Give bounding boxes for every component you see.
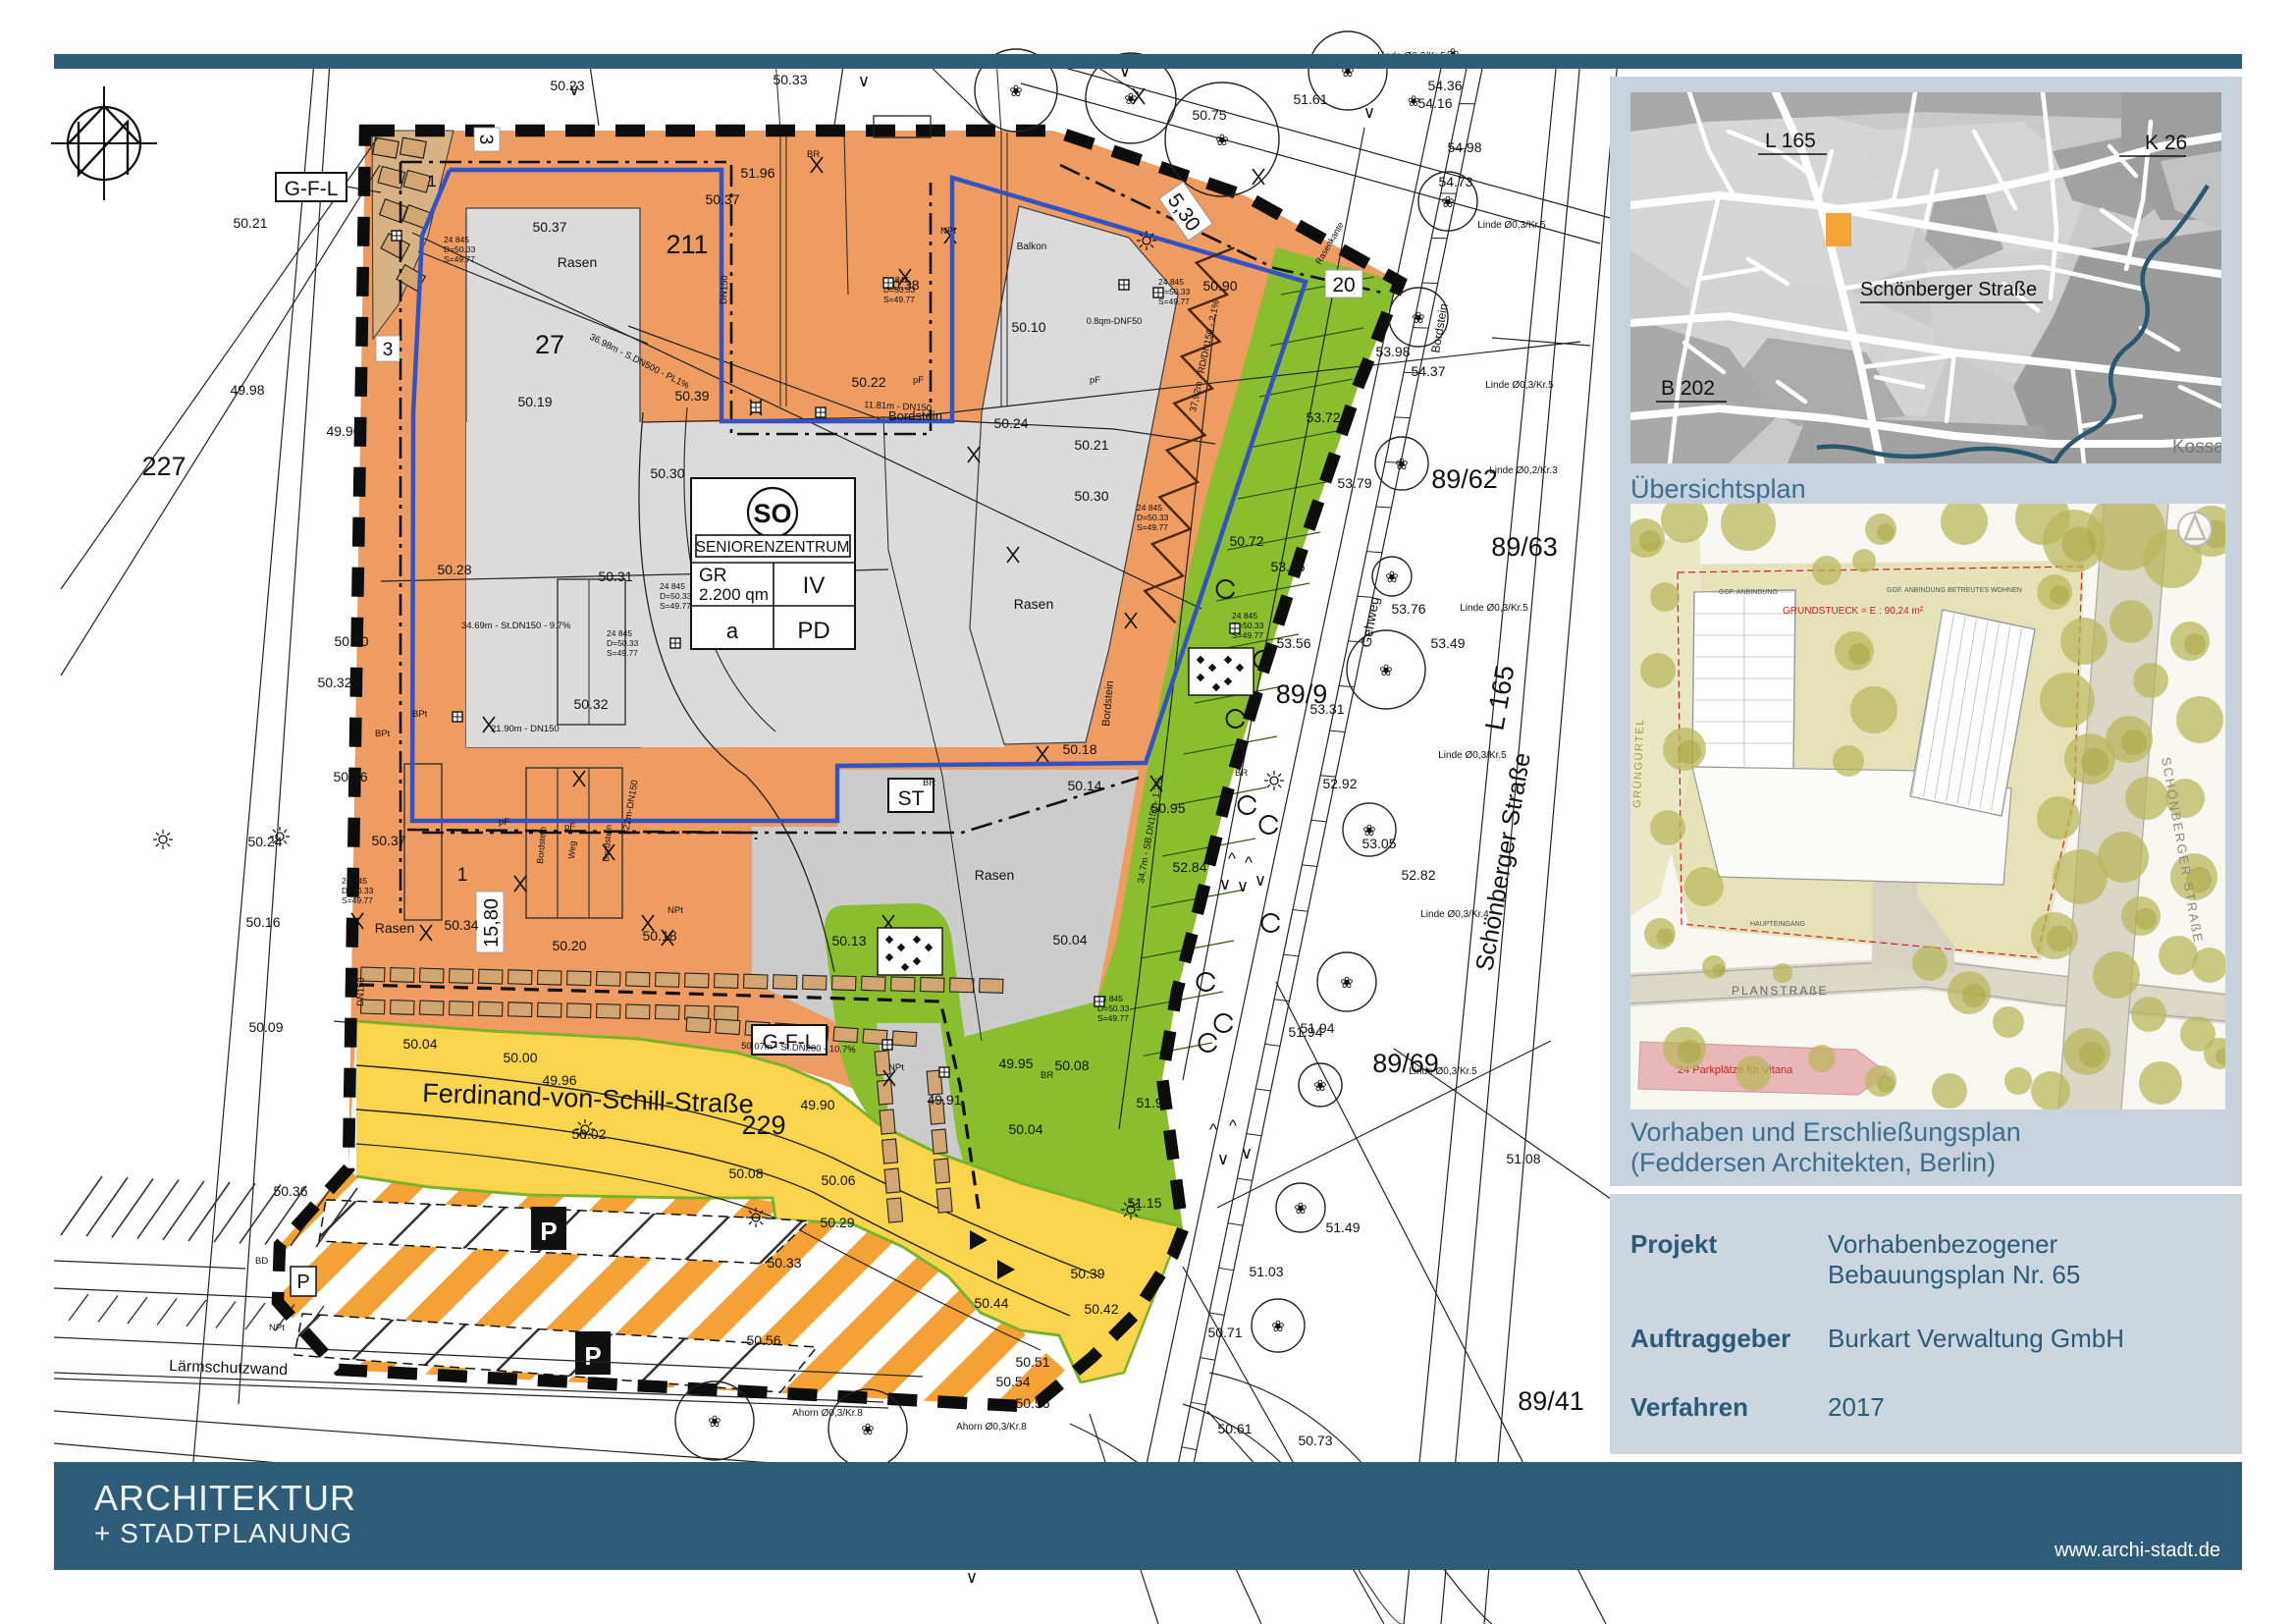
svg-text:51.94: 51.94 [1136, 1095, 1170, 1110]
svg-text:54.98: 54.98 [1447, 139, 1481, 155]
svg-text:Rasen: Rasen [375, 920, 414, 936]
svg-text:50.04: 50.04 [1052, 932, 1087, 947]
svg-text:54.16: 54.16 [1417, 95, 1452, 111]
svg-text:Weg: Weg [566, 840, 578, 859]
svg-text:50.56: 50.56 [1015, 1395, 1049, 1411]
svg-text:NPt: NPt [888, 1062, 904, 1073]
svg-text:50.19: 50.19 [517, 394, 552, 409]
svg-text:HAUPTEINGANG: HAUPTEINGANG [1750, 921, 1805, 928]
svg-text:24 845: 24 845 [660, 581, 685, 591]
svg-text:54.36: 54.36 [1427, 78, 1462, 93]
svg-text:L 165: L 165 [1765, 130, 1816, 152]
svg-text:∨: ∨ [1219, 875, 1231, 893]
svg-text:50.04: 50.04 [402, 1036, 437, 1052]
svg-text:50.56: 50.56 [746, 1332, 780, 1348]
svg-text:50.32: 50.32 [317, 675, 351, 690]
svg-text:∨: ∨ [966, 1568, 978, 1587]
svg-text:50.18: 50.18 [642, 928, 676, 944]
svg-text:52.84: 52.84 [1172, 859, 1206, 875]
svg-text:50.90: 50.90 [1202, 278, 1237, 294]
svg-text:34.69m - St.DN150 - 9.7%: 34.69m - St.DN150 - 9.7% [461, 621, 571, 631]
svg-text:Linde Ø0,3/Kr.5: Linde Ø0,3/Kr.5 [1409, 1066, 1477, 1077]
svg-text:❀: ❀ [1313, 1078, 1326, 1095]
svg-text:D=50.33: D=50.33 [342, 886, 374, 895]
svg-text:24 845: 24 845 [444, 235, 469, 244]
svg-text:49.96: 49.96 [542, 1072, 576, 1088]
svg-text:50.10: 50.10 [1011, 319, 1045, 335]
svg-text:❀: ❀ [1009, 83, 1022, 100]
svg-text:53.31: 53.31 [1309, 701, 1344, 717]
svg-text:❀: ❀ [1340, 975, 1353, 992]
svg-text:53.46: 53.46 [1270, 559, 1305, 574]
svg-text:Linde Ø0,3/Kr.5: Linde Ø0,3/Kr.5 [1477, 220, 1546, 231]
svg-text:Gehweg: Gehweg [1358, 595, 1382, 648]
svg-text:Lärmschutzwand: Lärmschutzwand [169, 1358, 288, 1379]
svg-text:24 845: 24 845 [342, 876, 367, 886]
svg-text:S=49.77: S=49.77 [444, 254, 475, 264]
svg-text:50.73: 50.73 [1298, 1433, 1332, 1448]
svg-text:50.51: 50.51 [1015, 1354, 1049, 1370]
svg-text:K 26: K 26 [2145, 132, 2187, 154]
svg-text:^: ^ [1245, 853, 1253, 872]
svg-text:52.82: 52.82 [1401, 867, 1435, 883]
svg-text:Kossau: Kossau [2172, 437, 2221, 458]
svg-text:51.49: 51.49 [1325, 1219, 1360, 1235]
svg-text:BPt: BPt [412, 709, 428, 720]
svg-text:50.33: 50.33 [773, 72, 807, 87]
svg-text:Schönberger Straße: Schönberger Straße [1470, 750, 1536, 973]
svg-text:1: 1 [427, 172, 436, 190]
svg-text:50.44: 50.44 [974, 1295, 1008, 1311]
svg-text:52.92: 52.92 [1322, 776, 1357, 791]
svg-text:50.37: 50.37 [705, 191, 739, 207]
svg-text:49.95: 49.95 [998, 1056, 1033, 1071]
svg-text:50.22: 50.22 [851, 374, 885, 390]
svg-text:❀: ❀ [861, 1422, 874, 1438]
svg-text:BR: BR [807, 149, 820, 160]
svg-text:211: 211 [666, 230, 708, 259]
svg-text:3: 3 [475, 135, 496, 145]
svg-text:50.08: 50.08 [1054, 1057, 1089, 1073]
svg-text:21.90m - DN150: 21.90m - DN150 [491, 724, 560, 734]
svg-text:50.33: 50.33 [767, 1255, 801, 1271]
svg-text:Schönberger Straße: Schönberger Straße [1860, 279, 2037, 300]
svg-text:pF: pF [1090, 375, 1100, 386]
svg-text:51.03: 51.03 [1249, 1264, 1283, 1279]
svg-text:50.75: 50.75 [1192, 107, 1226, 123]
svg-text:2.200 qm: 2.200 qm [699, 585, 769, 604]
svg-text:DN150: DN150 [355, 977, 367, 1006]
svg-text:50.04: 50.04 [1008, 1121, 1042, 1137]
svg-text:50.32: 50.32 [573, 696, 608, 712]
svg-text:P: P [584, 1341, 601, 1371]
svg-text:S=49.77: S=49.77 [1137, 522, 1168, 532]
svg-text:❀: ❀ [1385, 569, 1398, 586]
svg-text:53.72: 53.72 [1306, 409, 1340, 425]
svg-text:15,80: 15,80 [481, 898, 503, 947]
svg-text:GRUNDSTUECK = E : 90,24 m²: GRUNDSTUECK = E : 90,24 m² [1783, 606, 1924, 617]
svg-text:50.20: 50.20 [552, 938, 586, 953]
svg-text:P: P [540, 1217, 557, 1246]
svg-text:BR: BR [923, 778, 935, 788]
svg-text:L 165: L 165 [1479, 663, 1520, 732]
svg-text:S=49.77: S=49.77 [607, 648, 638, 658]
svg-text:Linde Ø0,3/Kr.5: Linde Ø0,3/Kr.5 [1460, 603, 1528, 614]
svg-text:50.14: 50.14 [1067, 778, 1101, 793]
svg-text:❀: ❀ [1271, 1319, 1284, 1335]
svg-text:❀: ❀ [708, 1414, 721, 1431]
svg-text:pF: pF [564, 822, 575, 833]
svg-text:Linde Ø0,2/Kr.3: Linde Ø0,2/Kr.3 [1489, 465, 1558, 476]
svg-text:NPt: NPt [667, 905, 683, 916]
svg-text:50.00: 50.00 [503, 1050, 537, 1065]
svg-text:∨: ∨ [1237, 877, 1249, 895]
svg-text:51.08: 51.08 [1506, 1151, 1540, 1166]
svg-text:PLANSTRAßE: PLANSTRAßE [1732, 984, 1829, 998]
svg-text:Linde Ø0,3/Kr.5: Linde Ø0,3/Kr.5 [1438, 750, 1507, 761]
svg-text:50.18: 50.18 [1062, 741, 1096, 757]
svg-text:50.61: 50.61 [1217, 1421, 1252, 1436]
svg-text:❀: ❀ [1124, 91, 1137, 108]
svg-text:3: 3 [383, 340, 394, 360]
svg-text:50.30: 50.30 [1074, 488, 1108, 504]
svg-text:P: P [296, 1272, 309, 1293]
svg-text:50.21: 50.21 [1074, 437, 1108, 453]
svg-text:❀: ❀ [1412, 310, 1424, 327]
svg-text:IV: IV [803, 572, 826, 599]
svg-text:53.56: 53.56 [1276, 635, 1310, 651]
svg-text:54.73: 54.73 [1438, 174, 1472, 189]
svg-text:50.02: 50.02 [571, 1126, 606, 1142]
svg-text:50.24: 50.24 [993, 415, 1028, 431]
svg-text:50.30: 50.30 [650, 465, 684, 481]
svg-text:50.28: 50.28 [437, 562, 471, 577]
svg-text:Rasen: Rasen [1014, 596, 1053, 612]
svg-text:NPt: NPt [269, 1323, 285, 1333]
svg-text:Linde Ø0,3/Kr.4: Linde Ø0,3/Kr.4 [1420, 909, 1489, 920]
svg-text:a: a [726, 619, 739, 643]
svg-text:50.24: 50.24 [247, 834, 282, 849]
svg-text:50.34: 50.34 [444, 917, 478, 933]
svg-text:0.8qm-DNF50: 0.8qm-DNF50 [1087, 316, 1143, 326]
svg-text:SO: SO [753, 499, 791, 528]
svg-text:50.71: 50.71 [1207, 1325, 1242, 1340]
svg-text:50.42: 50.42 [1084, 1301, 1118, 1317]
svg-text:27: 27 [535, 330, 564, 359]
svg-text:^: ^ [1209, 1120, 1217, 1139]
svg-text:49.90: 49.90 [326, 423, 360, 439]
svg-text:BD: BD [255, 1256, 268, 1267]
svg-text:Balkon: Balkon [1017, 242, 1047, 252]
svg-text:Linde Ø0,3/Kr.5: Linde Ø0,3/Kr.5 [1485, 380, 1554, 391]
svg-text:S=49.77: S=49.77 [660, 601, 691, 611]
svg-text:50.37: 50.37 [371, 833, 405, 848]
svg-text:∨: ∨ [1363, 103, 1375, 122]
svg-text:∨: ∨ [858, 72, 870, 90]
svg-text:50.36: 50.36 [333, 769, 367, 785]
svg-text:50.30: 50.30 [334, 633, 368, 649]
svg-text:Ahorn Ø0,3/Kr.8: Ahorn Ø0,3/Kr.8 [956, 1422, 1027, 1433]
svg-text:D=50.33: D=50.33 [607, 638, 639, 648]
svg-text:❀: ❀ [1441, 194, 1454, 211]
svg-text:Rasen: Rasen [558, 254, 597, 270]
svg-text:Rasen: Rasen [975, 867, 1014, 883]
svg-text:50.36: 50.36 [273, 1183, 307, 1199]
svg-text:50.31: 50.31 [598, 568, 632, 584]
svg-text:89/63: 89/63 [1491, 532, 1558, 562]
svg-text:GGF. ANBINDUNG BETREUTES WOHNE: GGF. ANBINDUNG BETREUTES WOHNEN [1887, 587, 2022, 594]
svg-text:53.05: 53.05 [1362, 836, 1396, 851]
svg-text:24 845: 24 845 [1137, 503, 1162, 513]
svg-text:∨: ∨ [1255, 871, 1266, 890]
svg-text:B 202: B 202 [1661, 377, 1715, 400]
svg-text:227: 227 [141, 452, 186, 481]
svg-text:51.61: 51.61 [1293, 91, 1327, 107]
svg-text:NPt: NPt [940, 226, 956, 237]
svg-text:50.16: 50.16 [245, 914, 280, 930]
svg-text:G-F-L: G-F-L [285, 178, 339, 200]
svg-text:50.23: 50.23 [550, 78, 584, 93]
svg-text:❀: ❀ [1215, 133, 1228, 149]
svg-text:49.98: 49.98 [230, 382, 264, 398]
svg-text:PD: PD [797, 618, 829, 644]
svg-text:53.76: 53.76 [1391, 601, 1425, 617]
svg-text:BPt: BPt [375, 729, 391, 739]
svg-text:50.13: 50.13 [831, 933, 866, 948]
svg-text:51.96: 51.96 [740, 165, 774, 181]
svg-text:50.72: 50.72 [1229, 533, 1263, 549]
svg-text:❀: ❀ [1294, 1201, 1307, 1218]
svg-text:53.49: 53.49 [1430, 635, 1465, 651]
svg-text:S=49.77: S=49.77 [1097, 1013, 1129, 1023]
svg-text:24 845: 24 845 [1232, 611, 1257, 621]
svg-text:51.15: 51.15 [1127, 1195, 1161, 1211]
svg-text:89/62: 89/62 [1431, 464, 1498, 494]
svg-text:Ahorn Ø0,3/Kr.8: Ahorn Ø0,3/Kr.8 [792, 1408, 863, 1419]
svg-text:50.06: 50.06 [821, 1172, 855, 1188]
svg-text:GR: GR [699, 566, 727, 586]
svg-text:SENIORENZENTRUM: SENIORENZENTRUM [696, 539, 850, 556]
svg-text:1: 1 [457, 865, 468, 886]
svg-text:89/41: 89/41 [1518, 1386, 1584, 1416]
svg-text:49.90: 49.90 [800, 1097, 834, 1112]
svg-text:❀: ❀ [1395, 457, 1408, 473]
svg-text:49.91: 49.91 [927, 1092, 961, 1108]
svg-text:53.98: 53.98 [1375, 344, 1410, 359]
svg-text:❀: ❀ [1379, 663, 1392, 679]
svg-text:50.37: 50.37 [532, 219, 566, 235]
svg-text:50.54: 50.54 [995, 1374, 1030, 1389]
svg-text:53.79: 53.79 [1337, 475, 1371, 491]
svg-text:ST: ST [898, 787, 925, 810]
svg-text:50.21: 50.21 [233, 215, 267, 231]
svg-text:51.94: 51.94 [1288, 1024, 1322, 1040]
svg-text:BR: BR [1041, 1070, 1053, 1081]
svg-text:S=49.77: S=49.77 [883, 295, 915, 304]
svg-text:D=50.33: D=50.33 [1137, 513, 1169, 522]
svg-text:50.29: 50.29 [820, 1215, 854, 1230]
svg-text:∨: ∨ [1217, 1150, 1229, 1168]
svg-text:∨: ∨ [1241, 1144, 1253, 1163]
svg-text:50.09: 50.09 [248, 1019, 283, 1035]
svg-text:^: ^ [1229, 1116, 1237, 1135]
svg-text:^: ^ [1228, 849, 1236, 868]
svg-text:BR: BR [1235, 768, 1248, 779]
svg-text:54.37: 54.37 [1411, 363, 1445, 379]
svg-text:50.39: 50.39 [674, 388, 709, 404]
svg-text:50.39: 50.39 [1070, 1266, 1104, 1281]
svg-text:pF: pF [913, 375, 924, 386]
svg-text:D=50.33: D=50.33 [660, 591, 692, 601]
svg-text:50.08: 50.08 [728, 1165, 763, 1181]
svg-text:GGF. ANBINDUNG: GGF. ANBINDUNG [1719, 589, 1778, 596]
svg-text:S=49.77: S=49.77 [342, 895, 373, 905]
svg-text:20: 20 [1332, 274, 1355, 297]
svg-text:pF: pF [499, 817, 509, 828]
svg-text:24 845: 24 845 [1158, 277, 1184, 287]
svg-text:DN150: DN150 [719, 275, 730, 304]
svg-text:D=50.33: D=50.33 [444, 244, 476, 254]
svg-text:24 845: 24 845 [607, 628, 632, 638]
